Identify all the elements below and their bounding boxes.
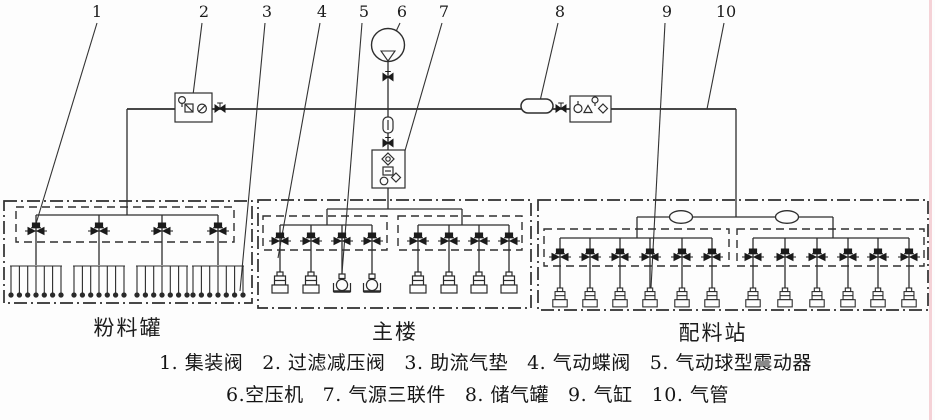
leader-line-4	[278, 23, 320, 258]
powder-tank-label: 粉料罐	[94, 316, 163, 340]
air-cushion-icon	[9, 266, 63, 297]
air-receiver-tank-icon	[521, 99, 553, 113]
air-cylinder-icon	[643, 288, 657, 307]
air-cylinder-icon	[583, 288, 597, 307]
pipeline-valve-icon	[215, 103, 225, 112]
legend-row-2: 6.空压机 7. 气源三联件 8. 储气罐 9. 气缸 10. 气管	[0, 383, 935, 407]
leader-line-2	[193, 23, 202, 95]
leader-line-10	[707, 23, 724, 109]
legend-row-1: 1. 集装阀 2. 过滤减压阀 3. 助流气垫 4. 气动蝶阀 5. 气动球型震…	[0, 351, 935, 375]
air-cylinder-icon	[501, 272, 517, 293]
air-cylinder-icon	[778, 288, 792, 307]
air-service-unit-icon	[372, 150, 405, 188]
collecting-valve-group-box	[16, 207, 234, 242]
callout-2: 2	[199, 2, 209, 21]
callout-4: 4	[317, 2, 327, 21]
air-cylinder-icon	[871, 288, 885, 307]
leader-line-3	[240, 23, 265, 291]
pneumatic-schematic: 1 2 3 4 5 6 7 8 9 10 粉料罐 主楼 配料站	[0, 0, 935, 348]
leader-line-7	[402, 23, 442, 161]
air-cylinder-icon	[441, 272, 457, 293]
callout-5: 5	[359, 2, 369, 21]
inline-tank-icon	[776, 211, 799, 224]
air-service-unit-2-icon	[570, 96, 611, 122]
powder-tank-enclosure	[4, 201, 252, 303]
callout-6: 6	[397, 2, 407, 21]
air-compressor-icon	[372, 29, 405, 62]
callout-3: 3	[262, 2, 272, 21]
callout-1: 1	[92, 2, 102, 21]
scan-edge-mark	[929, 0, 932, 420]
leader-line-9	[651, 23, 665, 288]
legend-item: 4. 气动蝶阀	[527, 351, 631, 375]
air-cylinder-icon	[841, 288, 855, 307]
air-cushion-icon	[191, 266, 245, 297]
air-cylinder-icon	[553, 288, 567, 307]
legend-item: 7. 气源三联件	[323, 383, 446, 407]
callout-10: 10	[716, 2, 736, 21]
air-cylinder-icon	[746, 288, 760, 307]
air-cylinder-icon	[675, 288, 689, 307]
butterfly-valve-group-box	[737, 229, 924, 266]
legend-item: 1. 集装阀	[159, 351, 243, 375]
legend-item: 3. 助流气垫	[404, 351, 508, 375]
air-cylinder-icon	[810, 288, 824, 307]
air-cylinder-icon	[410, 272, 426, 293]
callout-8: 8	[555, 2, 565, 21]
legend-item: 2. 过滤减压阀	[262, 351, 385, 375]
legend-item: 9. 气缸	[568, 383, 633, 407]
main-building-label: 主楼	[372, 320, 418, 344]
tank-outlet-valve-icon	[556, 103, 566, 112]
inline-tank-icon	[670, 211, 693, 224]
air-cylinder-icon	[613, 288, 627, 307]
air-cylinder-icon	[303, 272, 319, 293]
batching-station-branch-pipes	[560, 109, 909, 288]
filter-reducing-valve-icon	[175, 93, 212, 122]
callout-7: 7	[439, 2, 449, 21]
legend-item: 5. 气动球型震动器	[650, 351, 812, 375]
air-cylinder-icon	[705, 288, 719, 307]
leader-line-8	[540, 23, 558, 101]
ball-vibrator-icon	[364, 274, 381, 292]
air-cylinder-icon	[471, 272, 487, 293]
air-cushion-icon	[72, 266, 126, 297]
callout-9: 9	[662, 2, 672, 21]
leader-line-1	[35, 23, 97, 227]
legend-item: 8. 储气罐	[465, 383, 549, 407]
air-cylinder-icon	[272, 272, 288, 293]
pneumatic-system-figure: 1 2 3 4 5 6 7 8 9 10 粉料罐 主楼 配料站 1. 集装阀 2…	[0, 0, 935, 420]
air-cylinder-icon	[902, 288, 916, 307]
batching-station-label: 配料站	[679, 321, 748, 345]
ball-vibrator-icon	[334, 274, 351, 292]
legend-item: 10. 气管	[652, 383, 729, 407]
air-cushion-icon	[135, 266, 189, 297]
legend-item: 6.空压机	[226, 383, 304, 407]
